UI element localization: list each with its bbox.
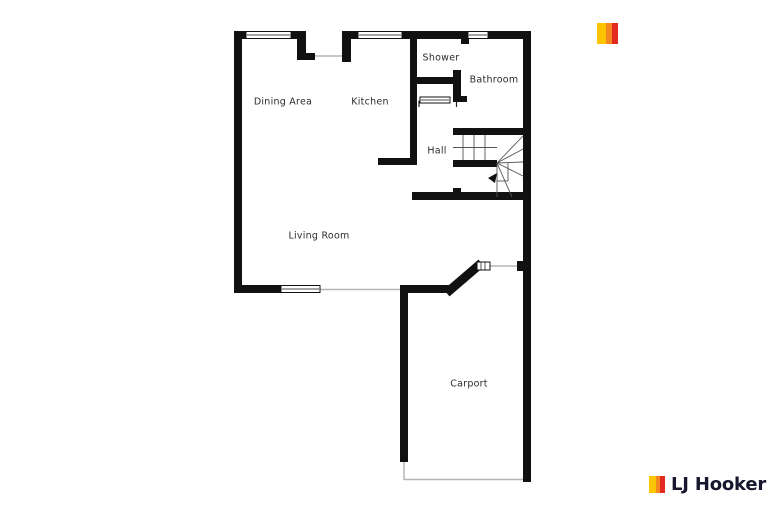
- diagonal-wall: [450, 266, 478, 290]
- floorplan-drawing: [0, 0, 768, 512]
- lj-hooker-logo-bottom: LJ Hooker: [649, 474, 766, 495]
- room-label-shower: Shower: [423, 53, 460, 64]
- room-label-carport: Carport: [450, 379, 488, 390]
- lj-hooker-logo-text: LJ Hooker: [624, 23, 719, 44]
- opening-lines: [315, 56, 529, 480]
- stair-direction-arrow: [488, 173, 497, 183]
- lj-hooker-logo-icon: [649, 476, 665, 493]
- room-label-dining-area: Dining Area: [254, 97, 312, 108]
- room-label-bathroom: Bathroom: [470, 75, 519, 86]
- room-label-hall: Hall: [427, 146, 446, 157]
- window-midlines: [247, 35, 487, 289]
- room-label-living-room: Living Room: [288, 231, 349, 242]
- lj-hooker-logo-icon: [597, 23, 618, 44]
- lj-hooker-logo-top: LJ Hooker: [597, 23, 719, 44]
- floorplan-page: Dining Area Kitchen Shower Bathroom Hall…: [0, 0, 768, 512]
- lj-hooker-logo-text: LJ Hooker: [671, 474, 766, 495]
- room-label-kitchen: Kitchen: [351, 97, 388, 108]
